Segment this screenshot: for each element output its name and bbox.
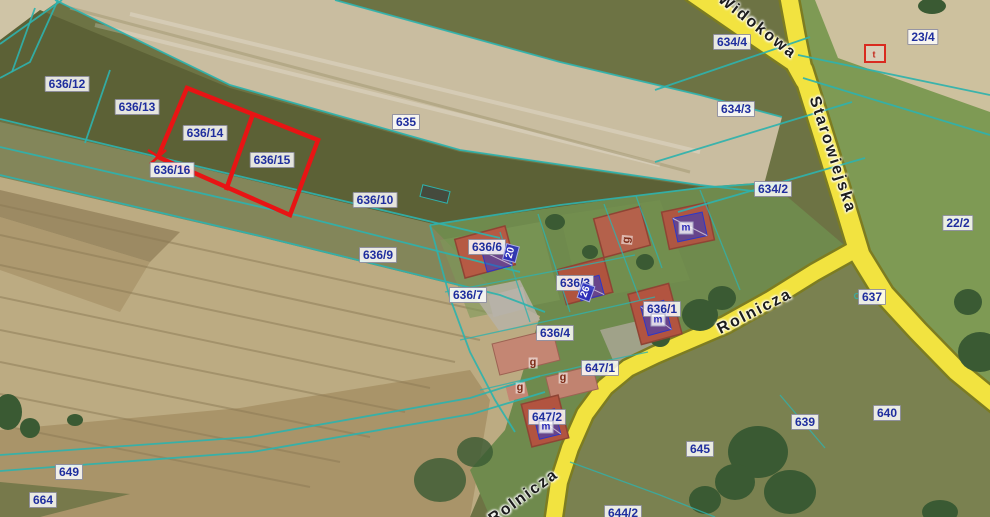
parcel-label-645: 645 (686, 441, 714, 457)
parcel-label-634-4: 634/4 (713, 34, 751, 50)
address-number-label-20: 20 (502, 243, 520, 263)
parcel-label-649: 649 (55, 464, 83, 480)
map-labels-layer: 636/12636/13636/14636/15636/16635636/106… (0, 0, 990, 517)
building-type-label-m-m: m (651, 314, 666, 327)
street-name-label-rolnicza: Rolnicza (714, 285, 795, 338)
parcel-label-636-6: 636/6 (468, 239, 506, 255)
building-type-label-m-m: m (679, 222, 694, 235)
parcel-label-636-16: 636/16 (150, 162, 195, 178)
parcel-label-636-10: 636/10 (353, 192, 398, 208)
parcel-label-664: 664 (29, 492, 57, 508)
building-type-label-g-g: g (516, 383, 525, 394)
building-symbol-label-t: t (873, 51, 876, 60)
parcel-label-636-4: 636/4 (536, 325, 574, 341)
parcel-label-634-3: 634/3 (717, 101, 755, 117)
building-type-label-g-g: g (621, 235, 633, 245)
street-name-label-starowiejska: Starowiejska (805, 94, 860, 215)
building-type-label-g-g: g (529, 358, 538, 369)
parcel-label-636-9: 636/9 (359, 247, 397, 263)
parcel-label-636-13: 636/13 (115, 99, 160, 115)
street-name-label-widokowa: Widokowa (714, 0, 800, 63)
parcel-label-644-2: 644/2 (604, 505, 642, 517)
street-name-label-rolnicza: Rolnicza (486, 466, 563, 517)
parcel-label-640: 640 (873, 405, 901, 421)
parcel-label-22-2: 22/2 (942, 215, 973, 231)
aerial-cadastral-map[interactable]: 636/12636/13636/14636/15636/16635636/106… (0, 0, 990, 517)
parcel-label-636-15: 636/15 (250, 152, 295, 168)
parcel-label-634-2: 634/2 (754, 181, 792, 197)
parcel-label-635: 635 (392, 114, 420, 130)
building-type-label-m-m: m (539, 421, 554, 434)
parcel-label-637: 637 (858, 289, 886, 305)
parcel-label-647-1: 647/1 (581, 360, 619, 376)
parcel-label-636-7: 636/7 (449, 287, 487, 303)
parcel-label-636-12: 636/12 (45, 76, 90, 92)
building-type-label-g-g: g (559, 373, 568, 384)
parcel-label-23-4: 23/4 (907, 29, 938, 45)
parcel-label-639: 639 (791, 414, 819, 430)
parcel-label-636-14: 636/14 (183, 125, 228, 141)
